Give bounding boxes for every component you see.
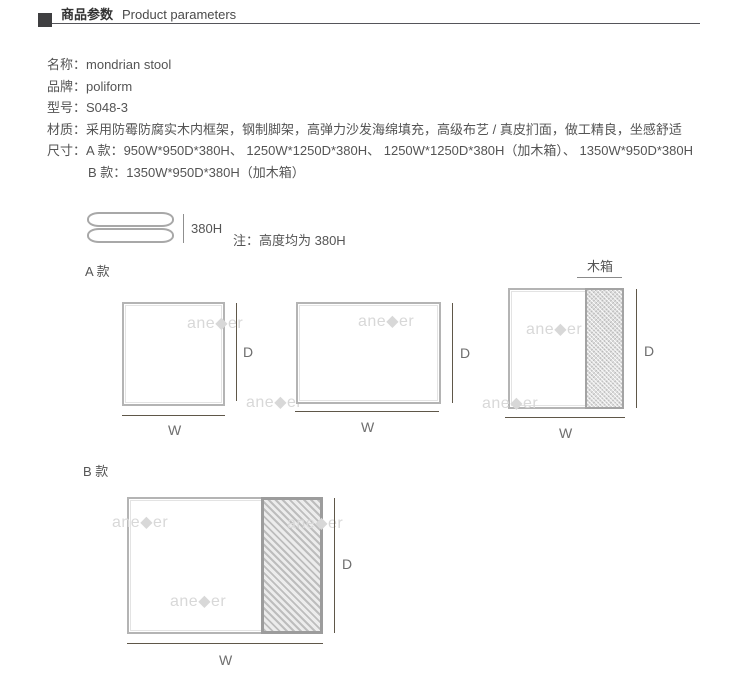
page-title-en: Product parameters	[122, 7, 236, 22]
dimension-line-d	[334, 498, 335, 633]
spec-label: 材质：	[47, 122, 86, 137]
spec-row-size-a: 尺寸：A 款：950W*950D*380H、 1250W*1250D*380H、…	[47, 140, 727, 162]
diagram-a1-top-view	[122, 302, 225, 406]
dimension-line-w	[295, 411, 439, 412]
diagram-a2-top-view	[296, 302, 441, 404]
spec-row-size-b: B 款：1350W*950D*380H（加木箱）	[47, 162, 727, 184]
height-note: 注：高度均为 380H	[233, 230, 346, 249]
dimension-label-w: W	[219, 652, 232, 668]
dimension-label-d: D	[460, 345, 470, 361]
product-parameters-page: 商品参数Product parameters 名称：mondrian stool…	[0, 0, 750, 695]
section-b-label: B 款	[83, 461, 108, 480]
spec-value: 采用防霉防腐实木内框架，钢制脚架，高弹力沙发海绵填充，高级布艺 / 真皮扪面，做…	[86, 122, 682, 137]
dimension-line-w	[122, 415, 225, 416]
dimension-label-w: W	[559, 425, 572, 441]
stool-cushion-bottom	[87, 228, 174, 243]
spec-value: B 款：1350W*950D*380H（加木箱）	[88, 165, 305, 180]
spec-list: 名称：mondrian stool 品牌：poliform 型号：S048-3 …	[47, 54, 727, 183]
spec-row-name: 名称：mondrian stool	[47, 54, 727, 76]
spec-value: poliform	[86, 79, 132, 94]
woodbox-hatched-area	[261, 497, 323, 634]
spec-label: 名称：	[47, 57, 86, 72]
woodbox-label: 木箱	[587, 256, 613, 275]
dimension-line-d	[636, 289, 637, 408]
spec-row-model: 型号：S048-3	[47, 97, 727, 119]
spec-label: 型号：	[47, 100, 86, 115]
woodbox-label-underline	[577, 277, 622, 278]
spec-row-material: 材质：采用防霉防腐实木内框架，钢制脚架，高弹力沙发海绵填充，高级布艺 / 真皮扪…	[47, 119, 727, 141]
page-title: 商品参数Product parameters	[61, 4, 236, 23]
dimension-label-w: W	[168, 422, 181, 438]
dimension-line-w	[505, 417, 625, 418]
height-dimension-label: 380H	[191, 221, 222, 236]
header-divider	[52, 23, 700, 24]
spec-row-brand: 品牌：poliform	[47, 76, 727, 98]
dimension-label-d: D	[644, 343, 654, 359]
section-a-label: A 款	[85, 261, 110, 280]
spec-value: mondrian stool	[86, 57, 171, 72]
spec-value: S048-3	[86, 100, 128, 115]
woodbox-hatched-area	[585, 288, 624, 409]
dimension-line-w	[127, 643, 323, 644]
header-bullet-square	[38, 13, 52, 27]
spec-value: A 款：950W*950D*380H、 1250W*1250D*380H、 12…	[86, 143, 693, 158]
watermark: ane◆er	[246, 392, 302, 412]
page-title-zh: 商品参数	[61, 7, 113, 22]
spec-label: 尺寸：	[47, 143, 86, 158]
dimension-label-d: D	[243, 344, 253, 360]
dimension-label-w: W	[361, 419, 374, 435]
dimension-line-d	[236, 303, 237, 401]
dimension-line-d	[452, 303, 453, 403]
dimension-label-d: D	[342, 556, 352, 572]
stool-cushion-top	[87, 212, 174, 227]
spec-label: 品牌：	[47, 79, 86, 94]
height-dimension-line	[183, 214, 184, 243]
